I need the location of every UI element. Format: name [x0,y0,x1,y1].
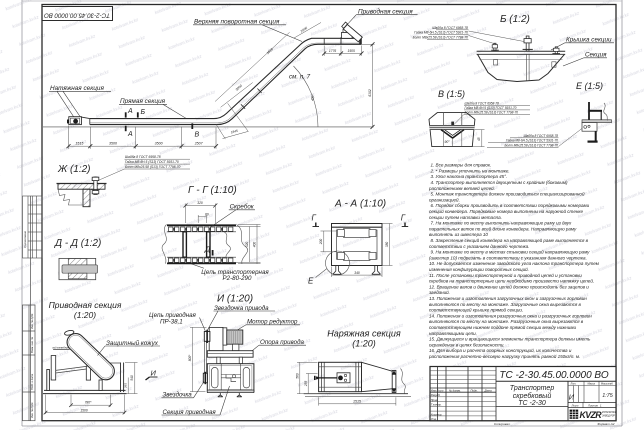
svg-text:Приводная секция: Приводная секция [49,300,122,310]
svg-text:соответствующей крышке прямой: соответствующей крышке прямой секции. [429,307,523,313]
svg-text:Г - Г (1:10): Г - Г (1:10) [188,185,237,196]
svg-text:Защитный кожух: Защитный кожух [106,339,159,347]
svg-text:КОТЕЛЬНЫЙ: КОТЕЛЬНЫЙ [602,411,617,414]
svg-text:Шайба 8 ГОСТ 6958-78: Шайба 8 ГОСТ 6958-78 [524,134,559,138]
svg-text:соответствующем нижнем поддоне: соответствующем нижнем поддоне прямой се… [429,324,576,330]
svg-text:Е: Е [308,277,314,286]
svg-text:3. Угол наклона транспортера: 3. Угол наклона транспортера 45°. [431,174,508,179]
svg-text:Р2-80-290: Р2-80-290 [223,275,252,282]
svg-text:Г: Г [312,214,317,223]
svg-text:Масса: Масса [588,383,596,386]
svg-text:1515: 1515 [353,400,361,404]
svg-text:13. Положения и изготовления з: 13. Положения и изготовления загрузочных… [429,296,587,301]
svg-text:№ докум.: № докум. [449,388,461,392]
svg-text:Лит.: Лит. [570,383,577,386]
svg-text:Т.контр.: Т.контр. [431,403,442,407]
svg-text:ТС -2-30: ТС -2-30 [518,400,546,407]
svg-text:Согласовано: Согласовано [23,230,27,248]
svg-text:320: 320 [197,201,203,205]
svg-text:ЗАВОД РЗР: ЗАВОД РЗР [602,414,615,417]
svg-text:расположением ветвей цепей.: расположением ветвей цепей. [428,185,495,191]
svg-text:(1:20): (1:20) [74,310,96,320]
svg-text:Гайка М8-6Н.5 (S13) ГОСТ 5931-: Гайка М8-6Н.5 (S13) ГОСТ 5931-70 [125,160,179,164]
svg-text:скребков на транспортерные цеп: скребков на транспортерные цепи необходи… [429,278,594,284]
svg-text:А - А (1:10): А - А (1:10) [334,199,386,210]
svg-text:1776: 1776 [329,49,337,53]
svg-text:(1:20): (1:20) [352,339,376,349]
svg-text:Натяжная секция: Натяжная секция [50,85,104,92]
svg-text:Шайба 8 ГОСТ 6958-78: Шайба 8 ГОСТ 6958-78 [432,26,468,30]
svg-text:16. Для выбора и расчета опор: 16. Для выбора и расчета опорных констру… [429,347,572,353]
svg-text:80: 80 [205,213,209,217]
svg-text:И (1:20): И (1:20) [217,294,253,305]
svg-text:6. Порядок сборки производить: 6. Порядок сборки производить в соответс… [431,203,590,208]
svg-text:Болт М8х25.58 (S13) ГОСТ 7798-: Болт М8х25.58 (S13) ГОСТ 7798-70 [465,110,519,114]
svg-text:выполняются по месту на монтаж: выполняются по месту на монтаже. Загрузо… [429,302,582,307]
svg-text:Д - Д (1:2): Д - Д (1:2) [54,238,101,249]
svg-text:Крышка секции: Крышка секции [566,37,612,44]
svg-text:Секция: Секция [585,52,607,59]
svg-text:11. После установки транспорт: 11. После установки транспортерной и при… [429,272,582,278]
svg-text:Е (1:5): Е (1:5) [576,81,603,91]
svg-text:Инв. № подл.: Инв. № подл. [30,402,34,418]
svg-text:540: 540 [130,375,134,381]
svg-text:Болт М8х25.58 (S13) ГОСТ 7798-: Болт М8х25.58 (S13) ГОСТ 7798-70 [504,143,558,147]
svg-text:200: 200 [319,239,323,246]
svg-text:5. Монтаж транспортера должен: 5. Монтаж транспортера должен производит… [431,191,585,197]
svg-text:Подп.: Подп. [471,388,478,392]
svg-text:2. * Размеры уточнить на монт: 2. * Размеры уточнить на монтаже. [430,168,510,173]
svg-text:Изм.Лист: Изм.Лист [431,388,444,392]
svg-text:Б (1:2): Б (1:2) [500,14,530,25]
svg-text:Н.контр.: Н.контр. [431,412,443,416]
svg-text:организацией.: организацией. [429,196,460,202]
svg-text:2507: 2507 [194,142,204,146]
svg-text:Транспортер: Транспортер [510,385,555,392]
svg-text:Разраб.: Разраб. [431,393,441,397]
svg-text:7. На монтаже по месту выполн: 7. На монтаже по месту выполнить направл… [431,221,572,226]
svg-text:1515: 1515 [75,142,83,146]
svg-text:Утв.: Утв. [431,417,437,421]
svg-text:выполнять из швеллера 10: выполнять из швеллера 10 [429,232,488,237]
svg-text:Наряжная секция: Наряжная секция [327,329,401,339]
svg-text:И: И [151,369,157,378]
svg-text:560: 560 [295,373,299,379]
svg-text:Гайка М8-6Н.5 (S13) ГОСТ 5931-: Гайка М8-6Н.5 (S13) ГОСТ 5931-70 [506,139,558,143]
svg-text:90°: 90° [445,140,451,144]
svg-text:14. Положения и изготовления: 14. Положения и изготовления разгрузочны… [429,313,592,318]
svg-text:Шайба 8 ГОСТ 6958-78: Шайба 8 ГОСТ 6958-78 [465,102,500,106]
svg-text:Дата: Дата [484,388,493,392]
svg-text:А: А [127,108,133,115]
svg-text:Б: Б [141,109,146,116]
svg-text:1:75: 1:75 [602,393,613,399]
svg-text:Болт М8х25.58 (S13) ГОСТ 7798-: Болт М8х25.58 (S13) ГОСТ 7798-70 [413,35,469,39]
svg-text:ТС -2-30.45.00.0000 ВО: ТС -2-30.45.00.0000 ВО [499,370,609,381]
svg-text:3500: 3500 [109,142,117,146]
svg-text:скребковый: скребковый [513,392,552,400]
svg-text:В: В [195,132,200,139]
svg-text:Подп. и дата: Подп. и дата [30,373,34,390]
svg-text:Гайка М8-6Н.5 (S13) ГОСТ 5931-: Гайка М8-6Н.5 (S13) ГОСТ 5931-70 [465,106,517,110]
svg-text:KVZR: KVZR [580,410,603,420]
svg-text:см. п. 7: см. п. 7 [289,74,311,81]
svg-text:45: 45 [477,137,481,141]
svg-text:255: 255 [304,381,308,388]
svg-text:Лист: Лист [571,404,580,408]
svg-text:380: 380 [385,242,389,248]
svg-text:Болт М8х25.58 (S13) ГОСТ 7798-: Болт М8х25.58 (S13) ГОСТ 7798-70 [125,165,181,169]
svg-text:Звездочка: Звездочка [163,392,193,399]
svg-text:Гайка М8-6Н.5 (S13) ГОСТ 5931-: Гайка М8-6Н.5 (S13) ГОСТ 5931-70 [414,31,468,35]
svg-text:12. Вращение валов и движение: 12. Вращение валов и движение цепей долж… [429,283,589,289]
svg-text:4. Транспортер выполняется дв: 4. Транспортер выполняется двухцепным с … [431,179,568,185]
svg-text:ПР-38,1: ПР-38,1 [160,319,183,326]
svg-text:Пров.: Пров. [431,398,438,402]
svg-text:(швеллер 10) подрезать в со: (швеллер 10) подрезать в соответствии с … [429,255,587,260]
svg-text:320: 320 [245,242,249,248]
svg-text:Масштаб: Масштаб [601,383,613,386]
svg-text:1. Все размеры для справок.: 1. Все размеры для справок. [431,163,492,168]
svg-text:соответствии с указанием данно: соответствии с указанием данного чертежа… [429,244,529,249]
svg-text:Копировал: Копировал [494,422,510,426]
svg-text:6102: 6102 [368,89,372,97]
svg-text:Взам. инв. №: Взам. инв. № [30,337,34,353]
svg-text:Формат А2: Формат А2 [598,422,615,426]
svg-text:1500: 1500 [80,409,88,413]
svg-text:Приводная секция: Приводная секция [358,7,413,15]
svg-text:10. Не допускается изменение з: 10. Не допускается изменение заводского … [429,261,600,266]
svg-text:ТС-2-30.45.00.0000 ВО: ТС-2-30.45.00.0000 ВО [44,12,110,19]
svg-text:А: А [127,131,133,138]
svg-text:Верхняя поворотная секция: Верхняя поворотная секция [194,19,280,26]
svg-text:Г: Г [401,214,406,223]
svg-text:1505: 1505 [348,49,356,53]
svg-text:ограждения в целях безопасност: ограждения в целях безопасности. [429,342,505,347]
svg-text:выполняются по месту на монтаж: выполняются по месту на монтаже. Разгруз… [429,319,584,324]
svg-text:направляющими цепи.: направляющими цепи. [429,331,477,336]
svg-text:340: 340 [354,271,360,275]
svg-text:Ж (1:2): Ж (1:2) [57,164,91,175]
svg-text:Листов: Листов [587,404,598,408]
svg-text:И: И [569,393,575,402]
svg-text:В (1:5): В (1:5) [438,89,465,99]
svg-text:параллельных веток по всей дли: параллельных веток по всей длине конвейе… [429,225,577,231]
svg-text:9. На монтаже по месту в мест: 9. На монтаже по месту в местах стыковки… [431,249,591,255]
svg-text:изменения конфигурации поворот: изменения конфигурации поворотных секций… [429,266,529,272]
svg-text:3500: 3500 [155,142,163,146]
svg-text:Мотор редуктор: Мотор редуктор [247,319,298,326]
svg-text:секции путем наплавки металла.: секции путем наплавки металла. [429,215,502,220]
svg-text:800*: 800* [188,354,192,361]
svg-text:265: 265 [124,383,128,389]
svg-text:Инв. № дубл.: Инв. № дубл. [30,313,34,329]
svg-text:15. Движущиеся и вращающиеся: 15. Движущиеся и вращающиеся элементы тр… [429,337,591,342]
svg-text:Д: Д [204,245,211,254]
svg-text:секций конвейера. Порядковые: секций конвейера. Порядковые номера выпо… [429,208,583,214]
svg-text:расположения расчетно-весовую: расположения расчетно-весовую нагрузку п… [428,353,580,359]
svg-text:780*: 780* [85,401,93,405]
svg-text:8. Закрепление секций конвейе: 8. Закрепление секций конвейера на напра… [431,237,589,243]
svg-text:400: 400 [253,242,257,248]
svg-text:Шайба 8 ГОСТ 6958-78: Шайба 8 ГОСТ 6958-78 [125,155,161,159]
svg-text:вид конвейера: вид конвейера [53,347,70,350]
svg-text:заеданий.: заеданий. [428,289,450,295]
svg-text:Прямая секция: Прямая секция [120,98,166,105]
